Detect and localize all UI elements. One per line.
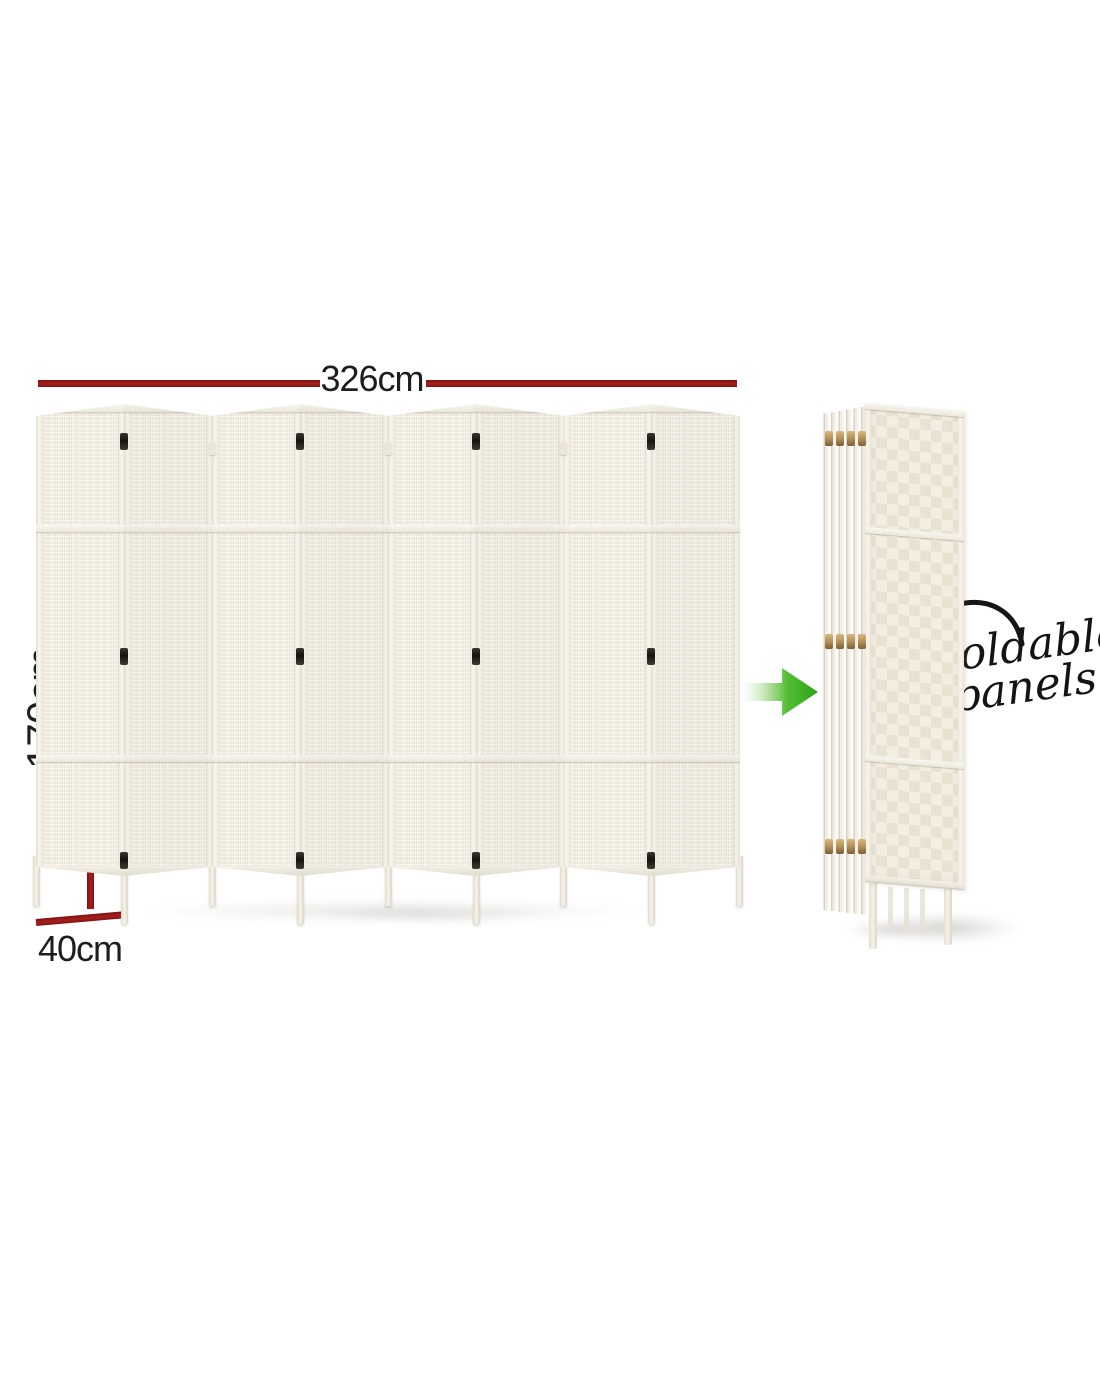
panel-rail [36, 866, 125, 876]
panel-rail [563, 755, 652, 762]
brass-hinge-icon [836, 431, 844, 446]
brass-hinge-icon [858, 634, 866, 649]
folded-back-leg [888, 887, 893, 927]
panel-rail [651, 755, 740, 762]
hinge-back-icon [560, 442, 567, 455]
panel-stile [300, 404, 307, 876]
divider-panel [300, 404, 389, 876]
divider-panel [124, 404, 213, 876]
panel-rail [388, 404, 477, 412]
brass-hinge-icon [825, 634, 833, 649]
panel-rail [300, 866, 389, 876]
front-panel-rail [865, 875, 964, 889]
panel-rail [212, 866, 301, 876]
panel-rail [124, 404, 213, 412]
hinge-icon [296, 648, 304, 665]
brass-hinge-icon [847, 839, 855, 854]
panel-rail [563, 404, 652, 412]
brass-hinge-icon [847, 634, 855, 649]
hinge-icon [472, 648, 480, 665]
panel-rail [476, 404, 565, 412]
divider-panel [212, 404, 301, 876]
divider-panel [388, 404, 477, 876]
front-panel-rail [865, 403, 964, 417]
panel-rail [300, 755, 389, 762]
panel-stile [212, 404, 219, 876]
divider-panel [563, 404, 652, 876]
divider-panel [476, 404, 565, 876]
panel-stile [36, 404, 43, 876]
panel-rail [476, 525, 565, 532]
panel-stile [563, 404, 570, 876]
hinge-icon [296, 433, 304, 450]
panel-rail [563, 866, 652, 876]
panel-rail [36, 525, 125, 532]
hinge-icon [120, 433, 128, 450]
panel-rail [476, 866, 565, 876]
brass-hinge-icon [858, 431, 866, 446]
panel-rail [388, 755, 477, 762]
panel-rail [212, 525, 301, 532]
panel-rail [651, 404, 740, 412]
hinge-icon [472, 433, 480, 450]
hinge-icon [647, 648, 655, 665]
folded-leg [869, 883, 877, 949]
hinge-back-icon [385, 442, 392, 455]
width-dimension-label: 326cm [320, 358, 424, 400]
panel-rail [212, 755, 301, 762]
room-divider-folded [822, 398, 972, 960]
panel-rail [36, 404, 125, 412]
hinge-icon [120, 852, 128, 869]
brass-hinge-icon [825, 431, 833, 446]
hinge-icon [296, 852, 304, 869]
panel-rail [300, 525, 389, 532]
folded-back-leg [920, 889, 925, 933]
hinge-icon [120, 648, 128, 665]
panel-rail [388, 525, 477, 532]
panel-rail [563, 525, 652, 532]
panel-stile [388, 404, 395, 876]
panel-rail [124, 755, 213, 762]
brass-hinge-icon [858, 839, 866, 854]
panel-rail [651, 866, 740, 876]
panel-rail [124, 525, 213, 532]
panel-stile [476, 404, 483, 876]
hinge-icon [647, 433, 655, 450]
panel-rail [212, 404, 301, 412]
panel-stile [124, 404, 131, 876]
panel-stile [733, 404, 740, 876]
folded-back-leg [904, 888, 909, 930]
front-panel-rail [865, 527, 964, 541]
panel-rail [651, 525, 740, 532]
brass-hinge-icon [825, 839, 833, 854]
brass-hinge-icon [836, 634, 844, 649]
panel-rail [300, 404, 389, 412]
divider-panel [651, 404, 740, 876]
panel-rail [476, 755, 565, 762]
brass-hinge-icon [836, 839, 844, 854]
folded-leg [944, 889, 952, 945]
brass-hinge-icon [847, 431, 855, 446]
hinge-back-icon [209, 442, 216, 455]
panel-rail [124, 866, 213, 876]
front-panel-stile [958, 411, 964, 889]
panel-rail [388, 866, 477, 876]
panel-stile [651, 404, 658, 876]
room-divider-unfolded [36, 404, 742, 944]
folded-front-panel [865, 403, 964, 889]
width-dimension-line-right [426, 380, 737, 387]
front-panel-rail [865, 755, 964, 769]
width-dimension-line-left [38, 380, 320, 387]
hinge-icon [472, 852, 480, 869]
product-image: 326cm 170cm 40cm [0, 0, 1100, 1375]
green-arrow-icon [744, 665, 820, 719]
divider-panel [36, 404, 125, 876]
panel-rail [36, 755, 125, 762]
hinge-icon [647, 852, 655, 869]
